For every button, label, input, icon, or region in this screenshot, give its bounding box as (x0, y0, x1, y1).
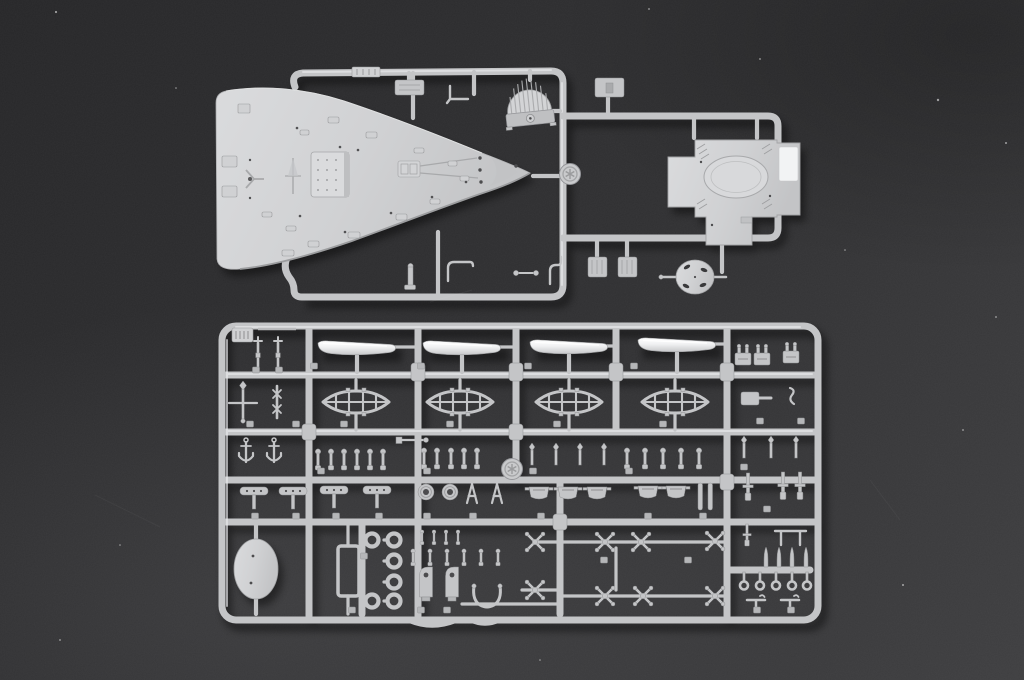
gun-mount (446, 567, 459, 601)
glossy-panel (779, 147, 798, 181)
capstan-ring (418, 484, 434, 500)
runner-text-plate (352, 67, 380, 77)
gun-mount (420, 567, 433, 601)
photo-canvas (0, 0, 1024, 680)
capstan-ring (442, 484, 458, 500)
vent-box-part (595, 78, 624, 97)
photo-background (0, 0, 1024, 680)
mold-stamp (560, 164, 581, 185)
mold-stamp (502, 459, 523, 480)
barbette (311, 152, 349, 197)
